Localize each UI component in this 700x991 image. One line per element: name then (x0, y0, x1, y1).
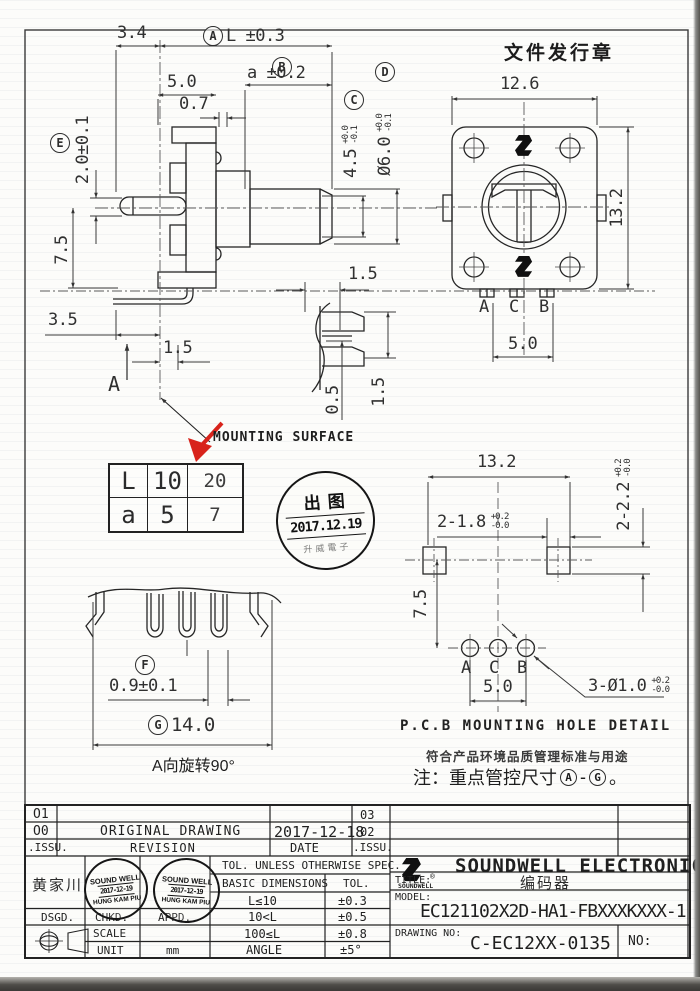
dim-13-2: 13.2 (607, 189, 627, 228)
table-cell: 5 (148, 498, 188, 531)
dim-1-5: 1.5 (163, 338, 192, 358)
rev-date-header: DATE (290, 841, 319, 855)
page-edge-shadow-right (693, 0, 700, 991)
tol-col-dim: BASIC DIMENSIONS (222, 877, 328, 890)
dim-2-0: 2.0±0.1 (73, 116, 93, 184)
drawing-no-label: DRAWING NO: (395, 928, 461, 939)
table-cell: L (110, 465, 148, 498)
rev-date-2: 2017-12-18 (274, 823, 364, 841)
dim-4-5-group: 4.5 +0.0-0.1 (341, 126, 361, 178)
rotated-view-caption: A向旋转90° (152, 752, 235, 776)
section-label-a: A (108, 372, 120, 396)
company-name: SOUNDWELL ELECTRONICS (455, 855, 700, 877)
dim-14-0: 14.0 (171, 714, 215, 736)
balloon-g: G (148, 715, 168, 735)
engineering-drawing-page: 文件发行章 3.4 A L ±0.3 B a ±0.2 5.0 0.7 C 4.… (0, 0, 700, 991)
stamp-title: 出图 (296, 486, 353, 515)
dim-3-5: 3.5 (48, 310, 77, 330)
dsgd-label: DSGD. (41, 911, 74, 924)
dim-6-0-group: Ø6.0 +0.0-0.1 (375, 114, 395, 176)
rev-header: REVISION (130, 841, 196, 855)
dim-7-5-pcb: 7.5 (411, 589, 431, 618)
issuance-stamp-title: 文件发行章 (504, 38, 614, 65)
drawing-no-value: C-EC12XX-0135 (470, 933, 611, 954)
mounting-leader (161, 398, 210, 442)
dim-5-0-top: 5.0 (508, 334, 537, 354)
table-cell: a (110, 498, 148, 531)
rev-issu-header: .ISSU. (353, 841, 393, 854)
dim-holes-group: 3-Ø1.0 +0.2-0.0 (588, 676, 669, 696)
title-value: 编码器 (520, 872, 571, 893)
tol-r1-val: ±0.3 (338, 894, 367, 908)
pcb-detail-part (423, 547, 570, 657)
balloon-c: C (344, 90, 364, 110)
stamp-date: 2017.12.19 (286, 512, 367, 539)
page-edge-shadow-bottom (0, 977, 700, 991)
unit-label: UNIT (97, 944, 124, 957)
tol-r3-val: ±0.8 (338, 927, 367, 941)
pin-label-b: B (539, 297, 549, 317)
title-label: TITLE: (395, 875, 431, 886)
dim-0-5: 0.5 (323, 385, 343, 414)
table-cell: 20 (188, 465, 242, 498)
tol-r2-dim: 10<L (248, 910, 277, 924)
dim-1-5-detail: 1.5 (348, 264, 377, 284)
projection-symbol-icon (35, 929, 88, 953)
tol-r3-dim: 100≤L (244, 927, 280, 941)
balloon-e: E (50, 133, 70, 153)
table-cell: 7 (188, 498, 242, 531)
dim-a: a ±0.2 (247, 63, 305, 83)
control-dims-note: 注：重点管控尺寸 A - G 。 (413, 764, 627, 790)
mounting-surface-label: MOUNTING SURFACE (213, 430, 354, 445)
pcb-detail-caption: P.C.B MOUNTING HOLE DETAIL (400, 718, 671, 734)
stamp-arc-text: 升威電子 (303, 539, 352, 555)
pin-label-c: C (509, 297, 519, 317)
compliance-note: 符合产品环境品质管理标准与用途 (426, 746, 629, 765)
front-view-part (113, 127, 332, 304)
tol-r4-val: ±5° (340, 943, 362, 957)
dim-3-4: 3.4 (117, 23, 146, 43)
tol-r1-dim: L≤10 (248, 894, 277, 908)
dim-l: L ±0.3 (226, 26, 284, 46)
dim-5-0: 5.0 (167, 72, 196, 92)
rotated-view-part (86, 588, 281, 656)
table-cell: 10 (148, 465, 188, 498)
dim-5-0-pcb: 5.0 (483, 677, 512, 697)
top-view-dimensions (452, 96, 634, 362)
rev-name-2: ORIGINAL DRAWING (100, 824, 241, 839)
dim-sq-h-group: 2-2.2 +0.2-0.0 (614, 459, 634, 530)
balloon-a-ref: A (560, 769, 577, 786)
dim-13-2-pcb: 13.2 (477, 452, 516, 472)
tol-col-tol: TOL. (343, 877, 370, 890)
designer-name: 黄家川 (32, 874, 83, 895)
balloon-d: D (375, 62, 395, 82)
rev-issu-3: .ISSU. (28, 841, 68, 854)
balloon-a: A (203, 26, 223, 46)
hole-label-c: C (489, 658, 499, 678)
dim-0-9: 0.9±0.1 (109, 676, 177, 696)
dim-12-6: 12.6 (500, 74, 539, 94)
l-a-parameter-table: L 10 20 a 5 7 (108, 463, 244, 533)
model-value: EC121102X2D-HA1-FBXXXKXXX-1 (420, 901, 686, 922)
dim-7-5: 7.5 (52, 235, 72, 264)
dim-sq-w-group: 2-1.8 +0.2-0.0 (437, 512, 508, 532)
hole-label-b: B (517, 658, 527, 678)
dim-0-7: 0.7 (179, 94, 208, 114)
rev-no-2: 02 (360, 825, 374, 839)
shaft-detail-part (312, 303, 364, 392)
tol-header: TOL. UNLESS OTHERWISE SPEC. (222, 859, 401, 872)
unit-value: mm (166, 944, 179, 957)
no-label: NO: (628, 934, 651, 949)
hole-label-a: A (461, 658, 471, 678)
dim-1-5-vert: 1.5 (369, 377, 389, 406)
balloon-f: F (135, 655, 155, 675)
scale-label: SCALE (93, 927, 126, 940)
tol-r2-val: ±0.5 (338, 910, 367, 924)
balloon-g-ref: G (589, 769, 606, 786)
pin-label-a: A (479, 297, 489, 317)
rev-no-1: 03 (360, 808, 374, 822)
rev-issu-2: O0 (33, 824, 49, 839)
rev-issu-1: O1 (33, 807, 49, 822)
tol-r4-dim: ANGLE (246, 943, 282, 957)
